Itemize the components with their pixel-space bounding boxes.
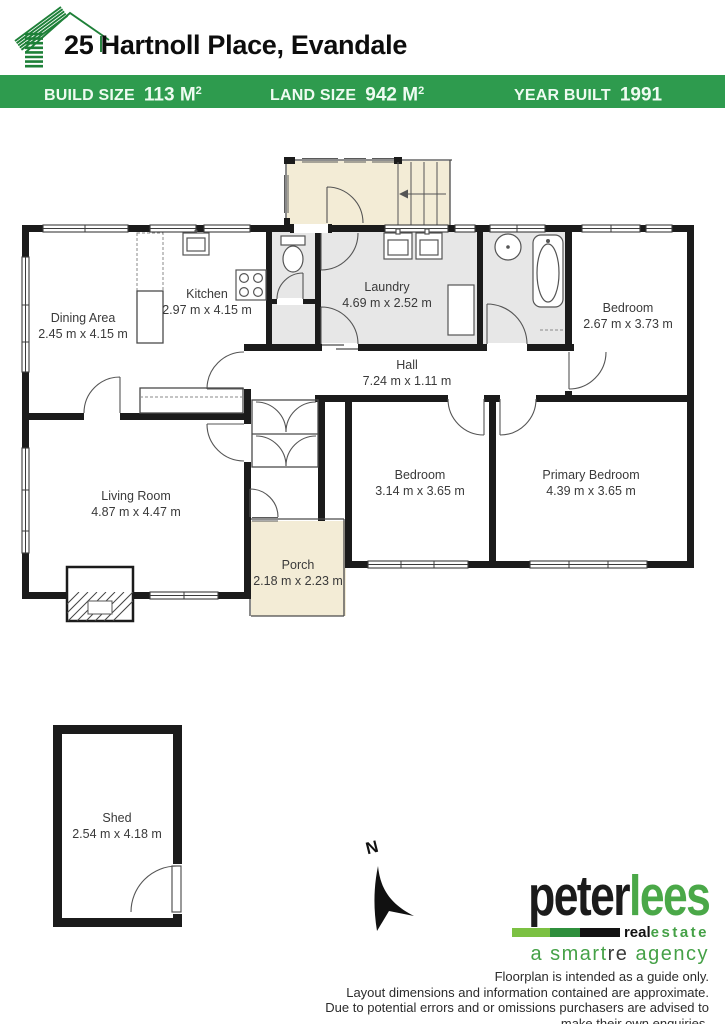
shed-door: [172, 866, 181, 912]
logo-wordmark: peterlees: [528, 869, 709, 923]
wc-fixtures: [281, 236, 305, 272]
agency-logo: peterlees realestate a smartre agency: [477, 869, 709, 966]
logo-bar-black: [580, 928, 620, 937]
north-arrow-icon: [374, 866, 414, 931]
laundry-tub-icon: [416, 229, 442, 259]
room-label-dining-area: Dining Area 2.45 m x 4.15 m: [38, 310, 128, 342]
room-label-porch: Porch 2.18 m x 2.23 m: [253, 557, 343, 589]
disclaimer-line: Layout dimensions and information contai…: [325, 985, 709, 1001]
floorplan-page: 25 Hartnoll Place, Evandale BUILD SIZE11…: [0, 0, 725, 1024]
laundry-sink-icon: [384, 229, 412, 259]
disclaimer-line: make their own enquiries.: [325, 1016, 709, 1024]
room-label-kitchen: Kitchen 2.97 m x 4.15 m: [162, 286, 252, 318]
room-label-bedroom-bottom: Bedroom 3.14 m x 3.65 m: [375, 467, 465, 499]
logo-bar-light-green: [512, 928, 550, 937]
laundry-cabinet: [448, 285, 474, 335]
room-label-primary-bedroom: Primary Bedroom 4.39 m x 3.65 m: [542, 467, 639, 499]
toilet-icon: [281, 236, 305, 272]
room-label-living-room: Living Room 4.87 m x 4.47 m: [91, 488, 181, 520]
room-label-hall: Hall 7.24 m x 1.11 m: [363, 357, 452, 389]
bathtub-icon: [533, 235, 563, 307]
logo-bar-dark-green: [550, 928, 580, 937]
logo-tagline: a smartre agency: [477, 943, 709, 966]
disclaimer-line: Due to potential errors and or omissions…: [325, 1000, 709, 1016]
room-label-shed: Shed 2.54 m x 4.18 m: [72, 810, 162, 842]
kitchen-sink-icon: [183, 229, 209, 255]
disclaimer-line: Floorplan is intended as a guide only.: [325, 969, 709, 985]
bath-sink-icon: [495, 234, 521, 260]
disclaimer: Floorplan is intended as a guide only. L…: [325, 969, 709, 1024]
room-label-laundry: Laundry 4.69 m x 2.52 m: [342, 279, 432, 311]
room-label-bedroom-right: Bedroom 2.67 m x 3.73 m: [583, 300, 673, 332]
hall-closets: [252, 400, 318, 467]
